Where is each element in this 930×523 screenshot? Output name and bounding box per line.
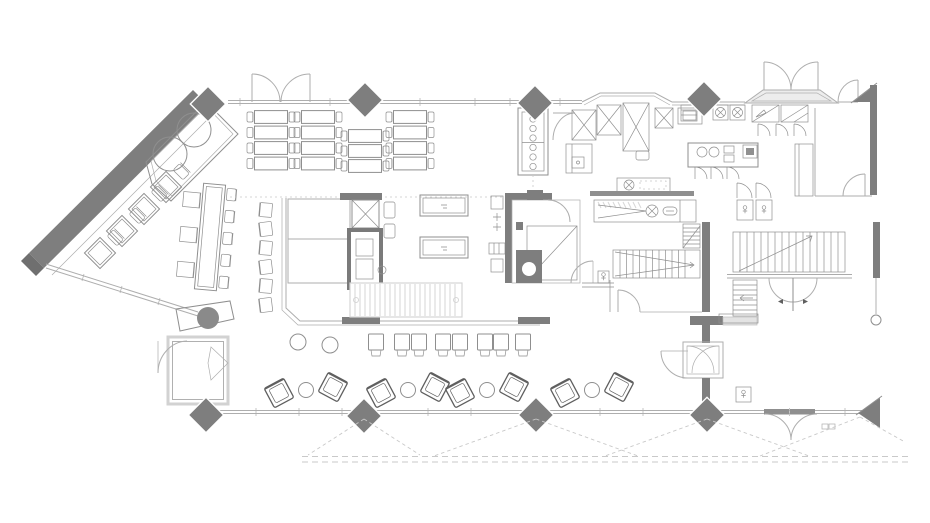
bench-chair [259,259,273,274]
diag-table [84,226,127,269]
bottom-double-door [764,408,835,440]
floor-plan-svg [0,0,930,523]
table2c [247,126,295,139]
table2c [247,142,295,155]
diamond [346,398,381,433]
floor-plan-stage [0,0,930,523]
core-wall [702,222,710,312]
table2c [294,157,342,170]
service-table-1 [420,195,468,216]
stair-main-center [613,250,700,278]
upper-right-room [795,108,872,196]
lounge [550,372,634,408]
lower-left-glazing [46,264,198,316]
wc-fixture [522,262,536,276]
diag-table [128,182,171,225]
stair-main-right [727,232,852,278]
diamond [686,81,721,116]
right-kitchen [681,105,872,220]
top-double-door [252,74,310,102]
bar-front-seg-2 [518,317,550,324]
lounge-layer [264,372,634,408]
service-table-2 [420,237,468,258]
kitchen-equipment [553,103,702,173]
stool [395,334,410,356]
dumbwaiter-shaft [340,193,395,288]
hood-counter [752,105,808,136]
round-tables-layer [290,334,338,353]
kitchen-island [688,143,758,179]
fridge-bank [572,103,702,160]
bench-chair [259,278,273,293]
table2c [294,111,342,124]
side-vestibule [661,342,723,378]
bench-chair [259,221,273,236]
left-diagonal-side [21,90,238,404]
stool [516,334,531,356]
communal-table [175,182,237,292]
appliance-pair [737,183,772,220]
lounge [264,372,348,408]
service-cabinet [518,108,548,200]
wc-core [489,193,593,283]
wc-door-arc [548,200,570,222]
top-wall-mullions [240,98,560,106]
table2c [386,126,434,139]
diagonal-tables-layer [84,160,193,269]
stool [478,334,493,356]
top-right-door [838,80,858,102]
table2c [386,111,434,124]
bench-chair [259,240,273,255]
stair-small-center [683,224,700,248]
stool [436,334,451,356]
back-counter-upper [288,199,350,239]
stool [453,334,468,356]
stool [494,334,509,356]
dining-tables-layer [247,111,434,173]
table2c [294,126,342,139]
table2c [341,145,389,158]
right-wall-bar [870,85,877,195]
stair-narrow-right [719,280,758,323]
corridor-door [618,290,702,312]
round-table [290,334,306,350]
stool [369,334,384,356]
pass-counter [590,178,696,222]
table2c [386,142,434,155]
prep-counter [566,144,592,173]
bar-counter-hatched [350,283,462,317]
banquette-line [52,112,215,275]
kitchen-hood [745,90,838,103]
bar-stools-layer [369,334,531,356]
wc-fixtures-left [489,196,505,272]
back-counter-lower [288,239,350,283]
bench-chair [259,297,273,312]
diamond [517,85,552,120]
entry-vestibule [158,337,228,404]
terrace-awning [302,417,908,462]
host-stand [176,301,234,331]
round-table [322,337,338,353]
bar-front-seg-1 [342,317,380,324]
bench-chair [259,202,273,217]
diamond [689,397,724,432]
lounge [366,372,450,408]
bench-chairs-layer [259,202,273,312]
lounge [445,372,529,408]
table2c [386,157,434,170]
stool [412,334,427,356]
table2c [294,142,342,155]
top-right-double-door [764,62,818,90]
table2c [341,160,389,173]
table2c [341,130,389,143]
diag-table [106,204,149,247]
diamond [347,82,382,117]
table2c [247,157,295,170]
diamond [518,397,553,432]
table2c [247,111,295,124]
dish-conveyor [594,200,696,222]
round-column [197,307,219,329]
communal-table-seats [176,192,200,278]
corner-column-bottom-right [858,398,880,428]
swing-door [769,278,817,311]
